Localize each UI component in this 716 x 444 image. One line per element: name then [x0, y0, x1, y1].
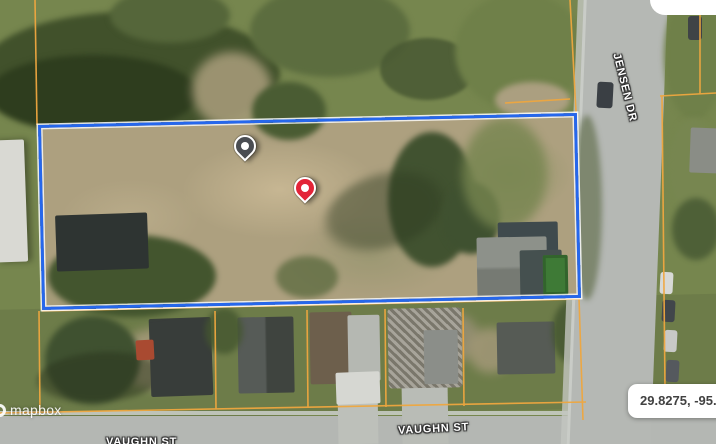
street-label-vaughn-st: VAUGHN ST	[106, 436, 177, 444]
map-marker-primary[interactable]	[293, 176, 317, 208]
marker-pin-dot	[301, 184, 309, 192]
mapbox-wordmark: mapbox	[10, 402, 62, 418]
map-canvas[interactable]: JENSEN DR VAUGHN ST VAUGHN ST 29.8275, -…	[0, 0, 716, 444]
property-boundary[interactable]	[38, 113, 581, 310]
overlay-panel-corner	[650, 0, 716, 15]
marker-pin-dot	[241, 142, 249, 150]
map-marker-secondary[interactable]	[233, 134, 257, 166]
mapbox-logo[interactable]: mapbox	[0, 402, 62, 418]
mapbox-icon	[0, 404, 6, 417]
coordinates-badge: 29.8275, -95.343	[628, 384, 716, 418]
